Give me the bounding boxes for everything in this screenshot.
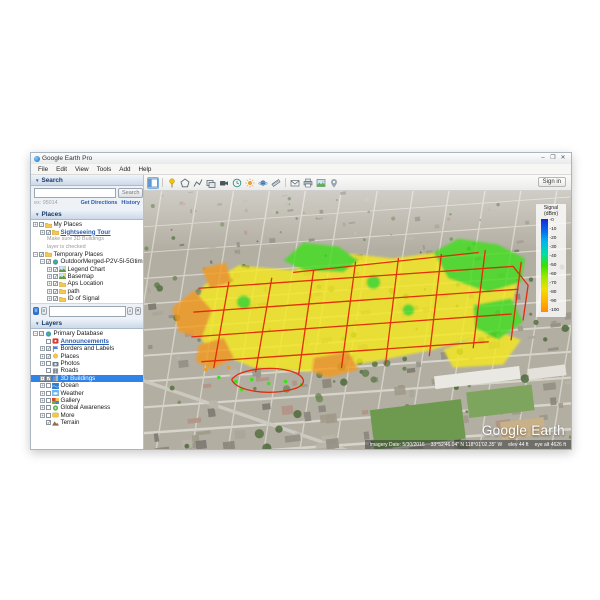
tree-item-label: Photos — [61, 360, 80, 367]
tree-item-label: More — [61, 412, 75, 419]
gallery-icon — [52, 398, 59, 404]
legend-tick: -10 — [550, 228, 560, 233]
checkbox[interactable]: ✓ — [53, 267, 58, 272]
checkbox[interactable]: ✓ — [46, 346, 51, 351]
places-item-legend-chart[interactable]: +✓Legend Chart — [31, 265, 143, 272]
checkbox[interactable]: ✓ — [53, 296, 58, 301]
tree-note-text: Make sure 3D Buildings — [47, 236, 104, 242]
map-area: Sign in — [144, 175, 571, 449]
checkbox[interactable]: ✓ — [46, 420, 51, 425]
announce-icon — [52, 338, 59, 344]
expander-icon[interactable]: + — [40, 346, 45, 351]
menu-view[interactable]: View — [71, 166, 93, 173]
more-icon — [52, 412, 59, 418]
checkbox[interactable] — [46, 391, 51, 396]
places-panel-header[interactable]: ▼ Places — [31, 209, 143, 220]
layers-item-gallery[interactable]: +Gallery — [31, 397, 143, 404]
checkbox[interactable]: ✓ — [53, 281, 58, 286]
menu-edit[interactable]: Edit — [52, 166, 71, 173]
legend-tick: -50 — [550, 264, 560, 269]
layers-item-photos[interactable]: +Photos — [31, 360, 143, 367]
tree-item-label: Ocean — [61, 382, 79, 389]
places-note: Make sure 3D Buildings — [31, 236, 143, 243]
search-panel-header[interactable]: ▼ Search — [31, 175, 143, 186]
checkbox[interactable]: ✓ — [39, 331, 44, 336]
tree-item-label: 3D Buildings — [61, 375, 96, 382]
toolbar-separator — [162, 178, 163, 187]
buildings-icon — [52, 375, 59, 381]
expander-icon[interactable]: + — [47, 267, 52, 272]
expander-icon[interactable]: + — [40, 376, 45, 381]
legend-tick: -80 — [550, 291, 560, 296]
places-item-my-places[interactable]: +✓My Places — [31, 221, 143, 228]
checkbox[interactable] — [46, 383, 51, 388]
print-icon[interactable] — [302, 177, 314, 189]
tree-item-label: Basemap — [68, 273, 94, 280]
sidebar: ▼ Search Search ex: 95014 Get Directions… — [31, 175, 144, 449]
places-item-basemap[interactable]: +✓Basemap — [31, 273, 143, 280]
tree-item-label: Borders and Labels — [61, 345, 115, 352]
checkbox[interactable]: ✓ — [46, 354, 51, 359]
app-icon — [34, 156, 40, 162]
checkbox[interactable] — [46, 339, 51, 344]
expander-icon[interactable]: + — [40, 398, 45, 403]
google-earth-window: Google Earth Pro – ❐ ✕ FileEditViewTools… — [30, 152, 572, 450]
places-icon — [52, 353, 59, 359]
google-earth-watermark: Google Earth — [482, 423, 565, 438]
minimize-button[interactable]: – — [538, 154, 548, 163]
layers-item-3d-buildings[interactable]: +✓3D Buildings — [31, 375, 143, 382]
places-item-path[interactable]: +✓path — [31, 288, 143, 295]
tree-item-label: Roads — [61, 367, 79, 374]
expander-icon — [40, 420, 45, 425]
expander-icon[interactable]: + — [47, 274, 52, 279]
places-note: layer is checked — [31, 243, 143, 250]
search-panel-title: Search — [41, 177, 62, 184]
view-in-maps-icon[interactable] — [328, 177, 340, 189]
image-icon — [59, 273, 66, 279]
expander-icon — [40, 368, 45, 373]
legend-tick: -100 — [550, 309, 560, 314]
layers-tree: −✓Primary DatabaseAnnouncements+✓Borders… — [31, 329, 143, 427]
tree-note-text: layer is checked — [47, 244, 86, 250]
places-tree: +✓My Places+✓Sightseeing TourMake sure 3… — [31, 220, 143, 303]
checkbox[interactable]: ✓ — [39, 222, 44, 227]
elevation: elev 44 ft — [508, 442, 528, 448]
places-search-input[interactable] — [49, 306, 126, 317]
title-bar[interactable]: Google Earth Pro – ❐ ✕ — [31, 153, 571, 164]
checkbox[interactable] — [46, 413, 51, 418]
legend-tick: -90 — [550, 300, 560, 305]
layers-item-places[interactable]: +✓Places — [31, 352, 143, 359]
map-viewport[interactable]: Signal (dBm) -0-10-20-30-40-50-60-70-80-… — [144, 191, 571, 449]
tree-item-label: Places — [61, 353, 80, 360]
expander-icon[interactable]: + — [40, 361, 45, 366]
legend-tick: -40 — [550, 255, 560, 260]
legend-tick: -30 — [550, 246, 560, 251]
expander-icon[interactable]: − — [33, 252, 38, 257]
eye-altitude: eye alt 4626 ft — [535, 442, 566, 448]
expander-icon[interactable]: + — [40, 391, 45, 396]
toolbar-separator — [285, 178, 286, 187]
places-item-temporary-places[interactable]: −✓Temporary Places — [31, 251, 143, 258]
layers-panel-title: Layers — [41, 320, 62, 327]
search-button[interactable]: Search — [118, 188, 143, 198]
layers-item-announcements[interactable]: Announcements — [31, 338, 143, 345]
expander-icon[interactable]: + — [40, 405, 45, 410]
legend-colorbar — [541, 219, 548, 312]
tree-item-label: ID of Signal — [68, 295, 100, 302]
tree-item-label: My Places — [54, 221, 83, 228]
places-filter-icon[interactable]: ≡ — [41, 307, 47, 315]
tree-item-label: Primary Database — [54, 330, 104, 337]
weather-icon — [52, 390, 59, 396]
layers-item-ocean[interactable]: +Ocean — [31, 382, 143, 389]
globe-icon — [45, 331, 52, 337]
imagery-date: Imagery Date: 5/30/2016 — [370, 442, 425, 448]
terrain-icon — [52, 420, 59, 426]
borders-icon — [52, 346, 59, 352]
places-panel-title: Places — [41, 211, 61, 218]
tree-item-label: Sightseeing Tour — [61, 229, 111, 236]
checkbox[interactable]: ✓ — [46, 259, 51, 264]
awareness-icon — [52, 405, 59, 411]
tree-item-label: Gallery — [61, 397, 81, 404]
checkbox[interactable] — [46, 361, 51, 366]
legend-tick: -60 — [550, 273, 560, 278]
collapse-caret-icon: ▼ — [35, 212, 39, 217]
expander-icon — [40, 339, 45, 344]
add-placemark-icon[interactable] — [166, 177, 178, 189]
menu-tools[interactable]: Tools — [93, 166, 116, 173]
tree-item-label: Global Awareness — [61, 404, 111, 411]
toolbar — [144, 175, 571, 191]
tree-item-label: Temporary Places — [54, 251, 104, 258]
places-search-bar: ⌕ ≡ ⌕ ✕ — [31, 303, 143, 318]
aerial-imagery[interactable] — [144, 191, 571, 449]
layers-item-primary-database[interactable]: −✓Primary Database — [31, 330, 143, 337]
checkbox[interactable]: ✓ — [53, 274, 58, 279]
expander-icon[interactable]: + — [47, 289, 52, 294]
folder-icon — [45, 251, 52, 257]
collapse-caret-icon: ▼ — [35, 178, 39, 183]
legend-ticks: -0-10-20-30-40-50-60-70-80-90-100 — [550, 219, 560, 314]
places-item-id-of-signal[interactable]: +✓ID of Signal — [31, 295, 143, 302]
layers-panel-header[interactable]: ▼ Layers — [31, 318, 143, 329]
layers-item-more[interactable]: +More — [31, 412, 143, 419]
expander-icon[interactable]: + — [40, 230, 45, 235]
expander-icon[interactable]: + — [40, 354, 45, 359]
expander-icon[interactable]: + — [47, 296, 52, 301]
legend-tick: -0 — [550, 219, 560, 224]
roads-icon — [52, 368, 59, 374]
add-polygon-icon[interactable] — [179, 177, 191, 189]
sidebar-toggle-icon[interactable] — [147, 177, 159, 189]
record-tour-icon[interactable] — [218, 177, 230, 189]
legend-tick: -70 — [550, 282, 560, 287]
menu-bar: FileEditViewToolsAddHelp — [31, 164, 571, 175]
planets-icon[interactable] — [257, 177, 269, 189]
legend-tick: -20 — [550, 237, 560, 242]
expander-icon[interactable]: + — [40, 413, 45, 418]
menu-add[interactable]: Add — [115, 166, 134, 173]
menu-file[interactable]: File — [34, 166, 52, 173]
layers-item-roads[interactable]: Roads — [31, 367, 143, 374]
sign-in-button[interactable]: Sign in — [538, 177, 566, 187]
get-directions-link[interactable]: Get Directions — [81, 200, 118, 206]
folder-icon — [52, 229, 59, 235]
places-clear-button[interactable]: ✕ — [135, 307, 141, 315]
expander-icon[interactable]: − — [40, 259, 45, 264]
checkbox[interactable]: ✓ — [46, 230, 51, 235]
legend-subtitle: (dBm) — [537, 212, 565, 218]
places-search-icon[interactable]: ⌕ — [33, 307, 39, 315]
tree-item-label: Terrain — [61, 419, 80, 426]
layers-item-weather[interactable]: +Weather — [31, 389, 143, 396]
tree-item-label: OutdoorMerged-P2V-5l-5Gtime — [61, 258, 144, 265]
folder-icon — [59, 281, 66, 287]
search-hint: ex: 95014 — [34, 200, 58, 206]
ocean-icon — [52, 383, 59, 389]
folder-icon — [59, 288, 66, 294]
checkbox[interactable] — [46, 368, 51, 373]
history-link[interactable]: History — [121, 200, 140, 206]
layers-item-borders-and-labels[interactable]: +✓Borders and Labels — [31, 345, 143, 352]
checkbox[interactable] — [46, 405, 51, 410]
checkbox[interactable]: ✓ — [39, 252, 44, 257]
email-icon[interactable] — [289, 177, 301, 189]
status-bar: Imagery Date: 5/30/2016 33°52'46.04" N 1… — [365, 440, 571, 449]
places-item-aps-location[interactable]: +✓Aps Location — [31, 280, 143, 287]
checkbox[interactable]: ✓ — [53, 289, 58, 294]
expander-icon[interactable]: − — [33, 331, 38, 336]
photos-icon — [52, 361, 59, 367]
add-image-overlay-icon[interactable] — [205, 177, 217, 189]
ruler-icon[interactable] — [270, 177, 282, 189]
menu-help[interactable]: Help — [134, 166, 155, 173]
image-icon — [59, 266, 66, 272]
places-item-outdoormerged-p2v-5l-5gtime[interactable]: −✓OutdoorMerged-P2V-5l-5Gtime — [31, 258, 143, 265]
search-input[interactable] — [34, 188, 116, 198]
checkbox[interactable]: ✓ — [46, 376, 51, 381]
expander-icon[interactable]: + — [47, 281, 52, 286]
folder-icon — [45, 222, 52, 228]
tree-item-label: Weather — [61, 390, 84, 397]
tree-item-label: Aps Location — [68, 280, 104, 287]
close-button[interactable]: ✕ — [558, 154, 568, 163]
globe-icon — [52, 259, 59, 265]
tree-item-label: Announcements — [61, 338, 109, 345]
collapse-caret-icon: ▼ — [35, 321, 39, 326]
sunlight-icon[interactable] — [244, 177, 256, 189]
tree-item-label: path — [68, 288, 80, 295]
layers-item-global-awareness[interactable]: +Global Awareness — [31, 404, 143, 411]
camera-coordinates: 33°52'46.04" N 118°01'02.35" W — [431, 442, 503, 448]
expander-icon[interactable]: + — [40, 383, 45, 388]
window-title: Google Earth Pro — [42, 155, 538, 162]
checkbox[interactable] — [46, 398, 51, 403]
save-image-icon[interactable] — [315, 177, 327, 189]
maximize-button[interactable]: ❐ — [548, 154, 558, 163]
search-links: Get DirectionsHistory — [81, 200, 140, 206]
layers-item-terrain[interactable]: ✓Terrain — [31, 419, 143, 426]
search-panel-body: Search ex: 95014 Get DirectionsHistory — [31, 186, 143, 209]
folder-icon — [59, 296, 66, 302]
places-item-sightseeing-tour[interactable]: +✓Sightseeing Tour — [31, 228, 143, 235]
add-path-icon[interactable] — [192, 177, 204, 189]
expander-icon[interactable]: + — [33, 222, 38, 227]
historical-imagery-icon[interactable] — [231, 177, 243, 189]
places-find-button[interactable]: ⌕ — [127, 307, 133, 315]
signal-legend: Signal (dBm) -0-10-20-30-40-50-60-70-80-… — [536, 204, 566, 317]
tree-item-label: Legend Chart — [68, 266, 106, 273]
